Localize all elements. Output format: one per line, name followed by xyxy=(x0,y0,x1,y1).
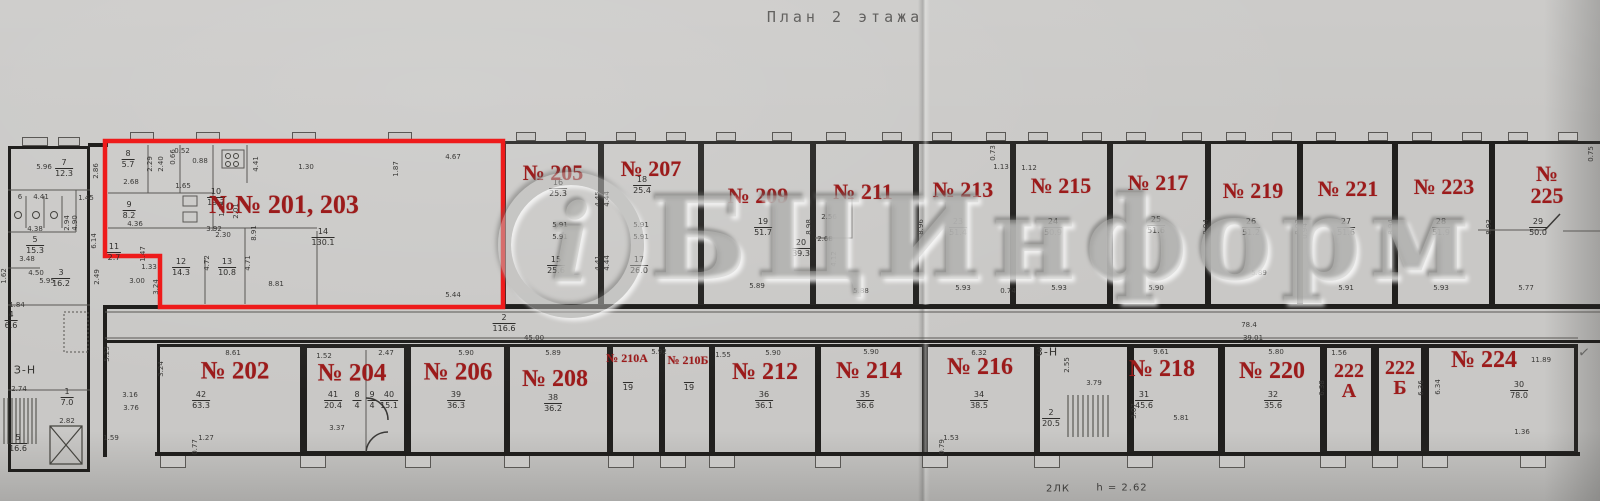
room-222b-label: 222 Б xyxy=(1385,358,1415,398)
window-tick xyxy=(388,132,412,142)
measurement: 1.33 xyxy=(141,263,157,271)
window-tick xyxy=(1182,132,1202,141)
measurement: 0.75 xyxy=(1587,146,1595,162)
measurement: 5.93 xyxy=(1433,284,1449,292)
window-tick xyxy=(516,132,536,141)
room-area: 25.4 xyxy=(633,185,651,195)
room-211-walls xyxy=(813,141,916,307)
measurement: 5.93 xyxy=(1051,284,1067,292)
measurement: 4.38 xyxy=(27,225,43,233)
room-area: 51.6 xyxy=(1147,225,1165,235)
room-number: 30 xyxy=(1510,381,1528,390)
room-number: 31 xyxy=(1135,391,1153,400)
measurement: 8.81 xyxy=(268,280,284,288)
measurement: 3.76 xyxy=(123,404,139,412)
window-tick xyxy=(1508,132,1528,141)
room-area: 15.3 xyxy=(26,245,44,255)
room-number: 2 xyxy=(1042,409,1060,418)
window-tick xyxy=(1028,132,1048,141)
room-number: 27 xyxy=(1337,218,1355,227)
area-fraction: 3235.6 xyxy=(1264,391,1282,410)
room-area: 25.3 xyxy=(549,188,567,198)
measurement: 3.24 xyxy=(157,361,165,377)
area-fraction: 1951.7 xyxy=(754,218,772,237)
area-fraction: 1310.8 xyxy=(218,258,236,277)
measurement: 8.94 xyxy=(1202,219,1210,235)
window-tick xyxy=(716,132,736,141)
room-222a-label: 222 А xyxy=(1334,361,1364,401)
room-area: 36.1 xyxy=(755,400,773,410)
measurement: 5.90 xyxy=(1148,284,1164,292)
area-fraction: 2651.2 xyxy=(1242,218,1260,237)
measurement: 1.12 xyxy=(1021,164,1037,172)
window-tick xyxy=(22,137,48,146)
area-fraction: 712.3 xyxy=(55,159,73,178)
zone-label: 3-Н xyxy=(1036,346,1058,359)
area-fraction: 1726.0 xyxy=(630,256,648,275)
room-area: 51.4 xyxy=(949,227,967,237)
area-fraction: 17.0 xyxy=(61,388,74,407)
measurement: 11.89 xyxy=(1531,356,1551,364)
area-fraction: 94 xyxy=(367,391,376,410)
measurement: 6.36 xyxy=(1417,380,1425,396)
measurement: 1.13 xyxy=(993,163,1009,171)
measurement: 4.44 xyxy=(603,191,611,207)
window-tick xyxy=(616,132,636,141)
measurement: 8.93 xyxy=(1485,219,1493,235)
room-number: 12 xyxy=(172,258,190,267)
measurement: 4.36 xyxy=(127,220,143,228)
room-area: 130.1 xyxy=(312,237,335,247)
room-number: 40 xyxy=(380,391,398,400)
room-area: 50.0 xyxy=(1529,227,1547,237)
measurement: 0.94 xyxy=(1301,223,1309,239)
measurement: 5.90 xyxy=(863,348,879,356)
ceiling-height-note: h = 2.62 xyxy=(1096,483,1147,494)
room-area: 10.8 xyxy=(218,267,236,277)
window-tick xyxy=(1368,132,1388,141)
room-225-label: № 225 xyxy=(1521,163,1574,207)
measurement: 9.61 xyxy=(1153,348,1169,356)
measurement: 78.4 xyxy=(1241,321,1257,329)
measurement: 2.94 xyxy=(63,215,71,231)
room-218-label: № 218 xyxy=(1129,357,1195,381)
area-fraction: 4120.4 xyxy=(324,391,342,410)
measurement: 1.45 xyxy=(78,194,94,202)
room-number: 38 xyxy=(544,394,562,403)
room-area: 4 xyxy=(367,400,376,410)
measurement: 2.47 xyxy=(378,349,394,357)
room-213-label: № 213 xyxy=(933,179,994,201)
measurement: 0.88 xyxy=(192,157,208,165)
measurement: 2.56 xyxy=(821,213,837,221)
measurement: 2.49 xyxy=(93,269,101,285)
measurement: 5.91 xyxy=(633,233,649,241)
window-tick xyxy=(1226,132,1246,141)
measurement: 5.92 xyxy=(651,348,667,356)
measurement: 1.36 xyxy=(1514,428,1530,436)
room-number: 8 xyxy=(122,150,135,159)
room-number: 13 xyxy=(218,258,236,267)
measurement: 5.91 xyxy=(552,233,568,241)
room-area: 20.4 xyxy=(324,400,342,410)
room-214-label: № 214 xyxy=(836,359,902,383)
area-fraction: 515.3 xyxy=(26,236,44,255)
measurement: 4.12 xyxy=(830,251,838,267)
room-area: 25.6 xyxy=(547,265,565,275)
room-number: 23 xyxy=(949,218,967,227)
room-number: 14 xyxy=(312,228,335,237)
measurement: 4.71 xyxy=(244,255,252,271)
window-tick xyxy=(882,132,902,141)
window-tick xyxy=(1126,132,1146,141)
room-number: 42 xyxy=(192,391,210,400)
room-number: 8 xyxy=(352,391,361,400)
measurement: 4.44 xyxy=(603,255,611,271)
measurement: 5.88 xyxy=(853,287,869,295)
area-fraction: 3636.1 xyxy=(755,391,773,410)
left-wing-link-wall xyxy=(88,143,108,147)
room-number: 20 xyxy=(792,239,810,248)
area-fraction: 2039.3 xyxy=(792,239,810,258)
measurement: 5.77 xyxy=(1518,284,1534,292)
measurement: 1.84 xyxy=(9,301,25,309)
room-223-label: № 223 xyxy=(1414,176,1475,198)
measurement: 5.23 xyxy=(103,346,111,362)
window-tick xyxy=(826,132,846,141)
room-number: 32 xyxy=(1264,391,1282,400)
area-fraction: 1214.3 xyxy=(172,258,190,277)
measurement: 5.91 xyxy=(1338,284,1354,292)
room-number: 15 xyxy=(547,256,565,265)
measurement: 5.90 xyxy=(765,349,781,357)
stairwell-3n-walls xyxy=(1037,344,1130,455)
area-fraction: 2116.6 xyxy=(493,314,516,333)
room-number: 41 xyxy=(324,391,342,400)
area-fraction: 112.7 xyxy=(107,243,121,262)
room-number: 4 xyxy=(5,311,18,320)
measurement: 4.45 xyxy=(594,191,602,207)
measurement: 2.86 xyxy=(92,163,100,179)
room-201-203-label: №№ 201, 203 xyxy=(209,192,359,218)
room-204-label: № 204 xyxy=(318,361,387,386)
room-area: 63.3 xyxy=(192,400,210,410)
room-number: 1 xyxy=(61,388,74,397)
room-area: 6.6 xyxy=(5,320,18,330)
measurement: 3.00 xyxy=(129,277,145,285)
measurement: 5.80 xyxy=(1268,348,1284,356)
area-fraction: 3078.0 xyxy=(1510,381,1528,400)
room-number: 39 xyxy=(447,391,465,400)
room-number: 7 xyxy=(55,159,73,168)
measurement: 8.98 xyxy=(805,219,813,235)
area-fraction: 2351.4 xyxy=(949,218,967,237)
room-area: 20.5 xyxy=(1042,418,1060,428)
room-number: 25 xyxy=(1147,216,1165,225)
window-tick xyxy=(196,132,220,142)
measurement: 4.67 xyxy=(445,153,461,161)
window-tick xyxy=(566,132,586,141)
room-area: 26.0 xyxy=(630,265,648,275)
measurement: 3.79 xyxy=(1086,379,1102,387)
window-tick xyxy=(666,132,686,141)
measurement: 5.89 xyxy=(749,282,765,290)
measurement: 0.73 xyxy=(989,145,997,161)
area-fraction: 14130.1 xyxy=(312,228,335,247)
measurement: 0.77 xyxy=(191,439,199,455)
measurement: 4.41 xyxy=(252,156,260,172)
room-number: 26 xyxy=(1242,218,1260,227)
measurement: 5.90 xyxy=(458,349,474,357)
window-tick xyxy=(1412,132,1432,141)
room-area: 50.9 xyxy=(1044,227,1062,237)
measurement: 4.41 xyxy=(594,255,602,271)
area-fraction: 4015.1 xyxy=(380,391,398,410)
area-fraction: 2450.9 xyxy=(1044,218,1062,237)
measurement: 1.59 xyxy=(103,434,119,442)
measurement: 6.38 xyxy=(1318,380,1326,396)
room-208-label: № 208 xyxy=(522,367,588,391)
room-area: 14.3 xyxy=(172,267,190,277)
measurement: 5.93 xyxy=(955,284,971,292)
room-area: 15.1 xyxy=(380,400,398,410)
measurement: 2.82 xyxy=(59,417,75,425)
measurement: 1.55 xyxy=(715,351,731,359)
measurement: 4.41 xyxy=(33,193,49,201)
window-tick xyxy=(1082,132,1102,141)
room-area: 19 xyxy=(684,382,694,392)
area-fraction: 3536.6 xyxy=(856,391,874,410)
measurement: 3.48 xyxy=(19,255,35,263)
room-area: 2.7 xyxy=(107,252,121,262)
room-217-label: № 217 xyxy=(1128,172,1189,194)
corridor-top-wall xyxy=(105,305,1600,309)
measurement: 5.95 xyxy=(39,277,55,285)
window-tick xyxy=(292,132,316,142)
room-area: 4 xyxy=(352,400,361,410)
area-fraction: 4263.3 xyxy=(192,391,210,410)
area-fraction: 2950.0 xyxy=(1529,218,1547,237)
measurement: 3.07 xyxy=(1130,403,1138,419)
measurement: 2.30 xyxy=(215,231,231,239)
window-tick xyxy=(1272,132,1292,141)
measurement: 5.91 xyxy=(552,221,568,229)
room-area: 19 xyxy=(623,382,633,392)
area-fraction: 3836.2 xyxy=(544,394,562,413)
measurement: 45.00 xyxy=(524,334,544,342)
measurement: 2.29 xyxy=(146,156,154,172)
room-area: 35.6 xyxy=(1264,400,1282,410)
stairs-note: 2ЛК xyxy=(1046,484,1070,495)
room-220-label: № 220 xyxy=(1239,359,1305,383)
measurement: 2.40 xyxy=(157,156,165,172)
room-number: 29 xyxy=(1529,218,1547,227)
measurement: 1.56 xyxy=(1331,349,1347,357)
room-number: 5 xyxy=(26,236,44,245)
room-area: 51.9 xyxy=(1432,227,1450,237)
measurement: 1.27 xyxy=(198,434,214,442)
measurement: 5.81 xyxy=(1173,414,1189,422)
room-area: 51.2 xyxy=(1242,227,1260,237)
measurement: 3.16 xyxy=(122,391,138,399)
room-210a-label: № 210А xyxy=(606,352,648,364)
room-211-label: № 211 xyxy=(833,181,892,203)
room-area: 51.6 xyxy=(1337,227,1355,237)
measurement: 39.01 xyxy=(1243,334,1263,342)
measurement: 5.89 xyxy=(1251,269,1267,277)
measurement: 4.90 xyxy=(71,215,79,231)
room-212-label: № 212 xyxy=(732,360,798,384)
room-219-label: № 219 xyxy=(1223,180,1284,202)
measurement: 6.34 xyxy=(1434,379,1442,395)
room-number: 19 xyxy=(754,218,772,227)
window-tick xyxy=(932,132,952,141)
room-area: 36.6 xyxy=(856,400,874,410)
room-number: 11 xyxy=(107,243,121,252)
area-fraction: 84 xyxy=(352,391,361,410)
measurement: 5.96 xyxy=(36,163,52,171)
room-221-label: № 221 xyxy=(1318,178,1379,200)
floor-plan-scan: План 2 этажа №№ 201, 203№ 205№ 207№ 209№… xyxy=(0,0,1600,501)
measurement: 0.74 xyxy=(1000,287,1016,295)
window-tick xyxy=(1558,132,1578,141)
window-tick xyxy=(772,132,792,141)
zone-label: З-Н xyxy=(14,364,36,377)
area-fraction: 19 xyxy=(684,381,694,392)
room-207-label: № 207 xyxy=(621,158,682,180)
measurement: 8.91 xyxy=(250,225,258,241)
room-224-label: № 224 xyxy=(1451,348,1517,372)
room-number: 2 xyxy=(493,314,516,323)
measurement: 1.47 xyxy=(139,246,147,262)
area-fraction: 46.6 xyxy=(5,311,18,330)
corridor-bottom-wall xyxy=(105,340,1600,343)
room-209-label: № 209 xyxy=(728,185,789,207)
room-area: 8.2 xyxy=(123,210,136,220)
room-area: 51.7 xyxy=(754,227,772,237)
area-fraction: 19 xyxy=(623,381,633,392)
measurement: 2.74 xyxy=(11,385,27,393)
measurement: 5.91 xyxy=(633,221,649,229)
room-area: 39.3 xyxy=(792,248,810,258)
measurement: 8.96 xyxy=(917,219,925,235)
area-fraction: 220.5 xyxy=(1042,409,1060,428)
measurement: 5.44 xyxy=(445,291,461,299)
room-area: 16.6 xyxy=(9,443,27,453)
measurement: 8.94 xyxy=(1387,219,1395,235)
area-fraction: 85.7 xyxy=(122,150,135,169)
room-number: 34 xyxy=(970,391,988,400)
room-number: 24 xyxy=(1044,218,1062,227)
area-fraction: 2551.6 xyxy=(1147,216,1165,235)
room-area: 116.6 xyxy=(493,323,516,333)
room-206-label: № 206 xyxy=(424,360,493,385)
room-number: 36 xyxy=(755,391,773,400)
measurement: 6 xyxy=(18,193,22,201)
room-202-label: № 202 xyxy=(201,359,270,384)
measurement: 4.50 xyxy=(28,269,44,277)
room-number: 35 xyxy=(856,391,874,400)
room-number: 9 xyxy=(367,391,376,400)
room-number: 5 xyxy=(9,434,27,443)
room-216-label: № 216 xyxy=(947,355,1013,379)
area-fraction: 2851.9 xyxy=(1432,218,1450,237)
room-area: 5.7 xyxy=(122,159,135,169)
room-area: 78.0 xyxy=(1510,390,1528,400)
room-area: 36.2 xyxy=(544,403,562,413)
page-title: План 2 этажа xyxy=(767,8,923,26)
measurement: 5.89 xyxy=(545,349,561,357)
area-fraction: 98.2 xyxy=(123,201,136,220)
room-area: 36.3 xyxy=(447,400,465,410)
room-area: 12.3 xyxy=(55,168,73,178)
measurement: 1.87 xyxy=(392,161,400,177)
room-210b-label: № 210Б xyxy=(668,354,709,366)
window-tick xyxy=(1316,132,1336,141)
measurement: 1.62 xyxy=(0,268,8,284)
measurement: 2.68 xyxy=(817,235,833,243)
window-tick xyxy=(986,132,1006,141)
room-number: 9 xyxy=(123,201,136,210)
room-number: 28 xyxy=(1432,218,1450,227)
measurement: 6.14 xyxy=(90,233,98,249)
area-fraction: 1525.6 xyxy=(547,256,565,275)
room-area: 38.5 xyxy=(970,400,988,410)
outer-bottom-wall xyxy=(155,452,1580,456)
measurement: 4.72 xyxy=(203,255,211,271)
measurement: 1.30 xyxy=(298,163,314,171)
measurement: 3.24 xyxy=(152,279,160,295)
measurement: 8.95 xyxy=(1107,219,1115,235)
area-fraction: 516.6 xyxy=(9,434,27,453)
measurement: 0.79 xyxy=(938,439,946,455)
measurement: 1.65 xyxy=(175,182,191,190)
room-number: 17 xyxy=(630,256,648,265)
window-tick xyxy=(1462,132,1482,141)
room-205-label: № 205 xyxy=(523,162,584,184)
window-tick xyxy=(58,137,80,146)
window-tick xyxy=(130,132,154,142)
measurement: 3.37 xyxy=(329,424,345,432)
room-215-label: № 215 xyxy=(1031,175,1092,197)
area-fraction: 3936.3 xyxy=(447,391,465,410)
room-area: 7.0 xyxy=(61,397,74,407)
measurement: 2.55 xyxy=(1063,357,1071,373)
pencil-check-mark: ✓ xyxy=(1577,344,1591,361)
measurement: 0.52 xyxy=(174,147,190,155)
measurement: 2.68 xyxy=(123,178,139,186)
area-fraction: 3438.5 xyxy=(970,391,988,410)
area-fraction: 2751.6 xyxy=(1337,218,1355,237)
stove-burner-icons xyxy=(226,154,239,167)
measurement: 8.61 xyxy=(225,349,241,357)
